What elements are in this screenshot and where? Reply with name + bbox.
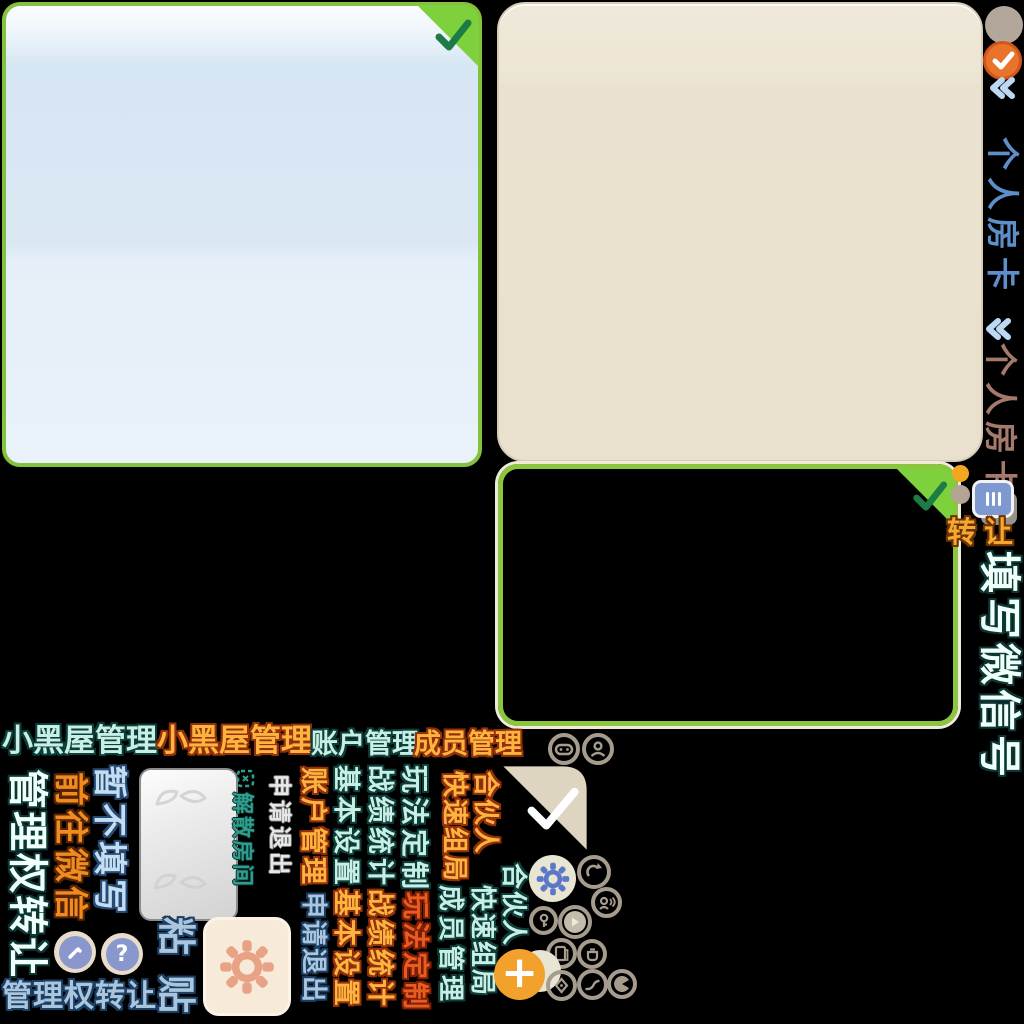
menu-account-management[interactable]: 账户管理 [311, 731, 419, 758]
gear-icon [536, 862, 570, 896]
partner-orange[interactable]: 合伙人 [472, 771, 498, 855]
taupe-dot [951, 485, 970, 504]
goto-wechat-button[interactable]: 前往微信 [53, 772, 87, 924]
partner-cyan[interactable]: 合伙人 [500, 863, 526, 947]
gameplay-custom-red[interactable]: 玩法定制 [401, 892, 428, 1012]
member-management-cyan[interactable]: 成员管理 [437, 885, 463, 1005]
room-card-icon[interactable] [972, 480, 1014, 518]
dissolve-room-icon[interactable] [236, 769, 255, 788]
diamond-icon[interactable] [546, 970, 577, 1001]
selected-corner-check-icon [895, 467, 955, 527]
management-transfer-vertical[interactable]: 管理权转让 [7, 769, 47, 979]
edit-icon[interactable] [54, 931, 96, 973]
help-icon[interactable]: ? [101, 933, 143, 975]
apply-quit-blue[interactable]: 申请退出 [300, 892, 326, 1004]
gear-icon [219, 939, 275, 995]
battle-stats-orange[interactable]: 战绩统计 [366, 889, 393, 1009]
plus-icon[interactable]: + [494, 949, 545, 1000]
tab-room-card-inactive[interactable]: 个人房卡 [984, 343, 1017, 499]
beige-corner-check-icon[interactable] [501, 765, 589, 851]
chevron-double-left-icon[interactable] [988, 77, 1016, 99]
fill-wechat-label[interactable]: 填写微信号 [978, 551, 1020, 781]
member-icon[interactable] [582, 733, 614, 765]
quick-group-cyan[interactable]: 快速组局 [469, 885, 495, 997]
battle-stats-cyan[interactable]: 战绩统计 [366, 765, 393, 889]
management-transfer-horizontal[interactable]: 管理权转让 [2, 982, 157, 1012]
account-management-orange[interactable]: 账户管理 [299, 767, 326, 887]
tile-back [139, 768, 238, 921]
gameplay-custom-cyan[interactable]: 玩法定制 [400, 765, 428, 893]
skip-fill-button[interactable]: 暂不填写 [92, 765, 126, 917]
voice-icon[interactable] [591, 887, 622, 918]
menu-member-management-active[interactable]: 成员管理 [414, 731, 522, 758]
transfer-button[interactable]: 转让 [947, 518, 1021, 547]
apply-quit-gray[interactable]: 申请退出 [267, 774, 290, 878]
play-icon[interactable] [558, 905, 592, 939]
panel-green-outline [498, 464, 958, 726]
plus-glyph: + [501, 947, 538, 998]
quick-group-orange[interactable]: 快速组局 [441, 771, 467, 883]
basic-settings-orange[interactable]: 基本设置 [332, 889, 359, 1009]
orange-dot [952, 465, 969, 482]
menu-blackroom-management-active[interactable]: 小黑屋管理 [157, 726, 312, 757]
sprite-sheet: 个人房卡 个人房卡 转让 填写微信号 小黑屋管理 小黑屋管理 账户管理 成员管理… [0, 0, 1024, 1024]
menu-blackroom-management[interactable]: 小黑屋管理 [2, 726, 157, 757]
key-icon[interactable] [529, 906, 558, 935]
pot-icon[interactable] [577, 939, 607, 969]
paste-button[interactable]: 粘贴 [157, 917, 195, 1024]
dissolve-room-button[interactable]: 解散房间 [230, 792, 252, 888]
gamepad-icon[interactable] [548, 733, 580, 765]
settings-tile[interactable] [203, 917, 291, 1016]
share-icon[interactable] [577, 855, 611, 889]
confirm-check-button[interactable] [983, 41, 1022, 80]
panel-blue-dialog [2, 2, 482, 467]
basic-settings-cyan[interactable]: 基本设置 [332, 765, 359, 889]
check-icon [990, 48, 1016, 74]
tab-room-card-active[interactable]: 个人房卡 [986, 137, 1019, 297]
panel-beige-dialog [497, 2, 983, 462]
question-glyph: ? [116, 942, 129, 967]
settings-circle[interactable] [529, 855, 576, 902]
chevron-double-left-icon[interactable] [984, 318, 1012, 340]
pie-icon[interactable] [607, 969, 637, 999]
trend-icon[interactable] [577, 969, 608, 1000]
selected-corner-check-icon [416, 4, 480, 68]
avatar-placeholder [985, 6, 1023, 44]
